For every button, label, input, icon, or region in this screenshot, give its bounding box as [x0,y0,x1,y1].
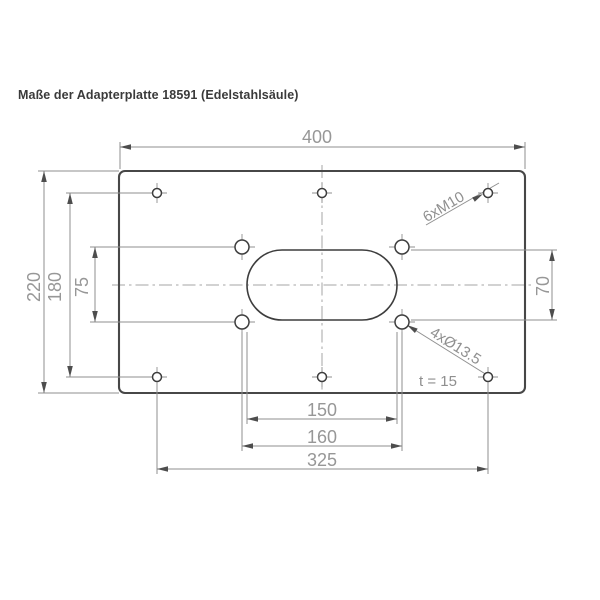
m10-hole [312,367,332,387]
through-hole [229,309,255,335]
dim-text-220: 220 [24,272,44,302]
m10-hole [478,367,498,387]
through-hole [389,309,415,335]
arrowhead [92,311,98,322]
arrowhead [514,144,525,150]
m10-hole [312,183,332,203]
dim-400: 400 [120,127,525,169]
arrowhead [41,382,47,393]
drawing-page: Maße der Adapterplatte 18591 (Edelstahls… [0,0,600,600]
technical-drawing: 6xM10 4xØ13.5 400 220 [0,0,600,600]
arrowhead [41,171,47,182]
dim-text-150: 150 [307,400,337,420]
through-hole-circle [395,315,409,329]
arrowhead [477,466,488,472]
arrowhead [549,309,555,320]
dim-text-70: 70 [533,276,553,296]
arrowhead [386,416,397,422]
dim-180: 180 [45,193,148,377]
dim-text-75: 75 [72,277,92,297]
through-hole [229,234,255,260]
arrowhead [242,443,253,449]
through-hole-circle [235,240,249,254]
arrowhead [391,443,402,449]
m10-hole [147,367,167,387]
leader-arrow [407,325,418,333]
m10-hole-circle [318,189,327,198]
arrowhead [92,247,98,258]
arrowhead [549,250,555,261]
m10-hole-circle [153,189,162,198]
leader-4xd13-5: 4xØ13.5 [407,324,487,375]
dim-text-160: 160 [307,427,337,447]
through-hole-circle [395,240,409,254]
through-hole-circle [235,315,249,329]
arrowhead [157,466,168,472]
m10-hole-circle [318,373,327,382]
arrowhead [67,193,73,204]
threaded-holes-label: 6xM10 [420,188,467,226]
m10-hole-circle [484,373,493,382]
dim-text-400: 400 [302,127,332,147]
dim-text-325: 325 [307,450,337,470]
through-holes-label: 4xØ13.5 [427,324,484,368]
m10-hole [478,183,498,203]
m10-hole-circle [484,189,493,198]
dim-160: 160 [242,332,402,451]
m10-hole-circle [153,373,162,382]
arrowhead [247,416,258,422]
through-hole [389,234,415,260]
thickness-label: t = 15 [419,373,457,390]
m10-hole [147,183,167,203]
arrowhead [120,144,131,150]
dim-text-180: 180 [45,272,65,302]
arrowhead [67,366,73,377]
